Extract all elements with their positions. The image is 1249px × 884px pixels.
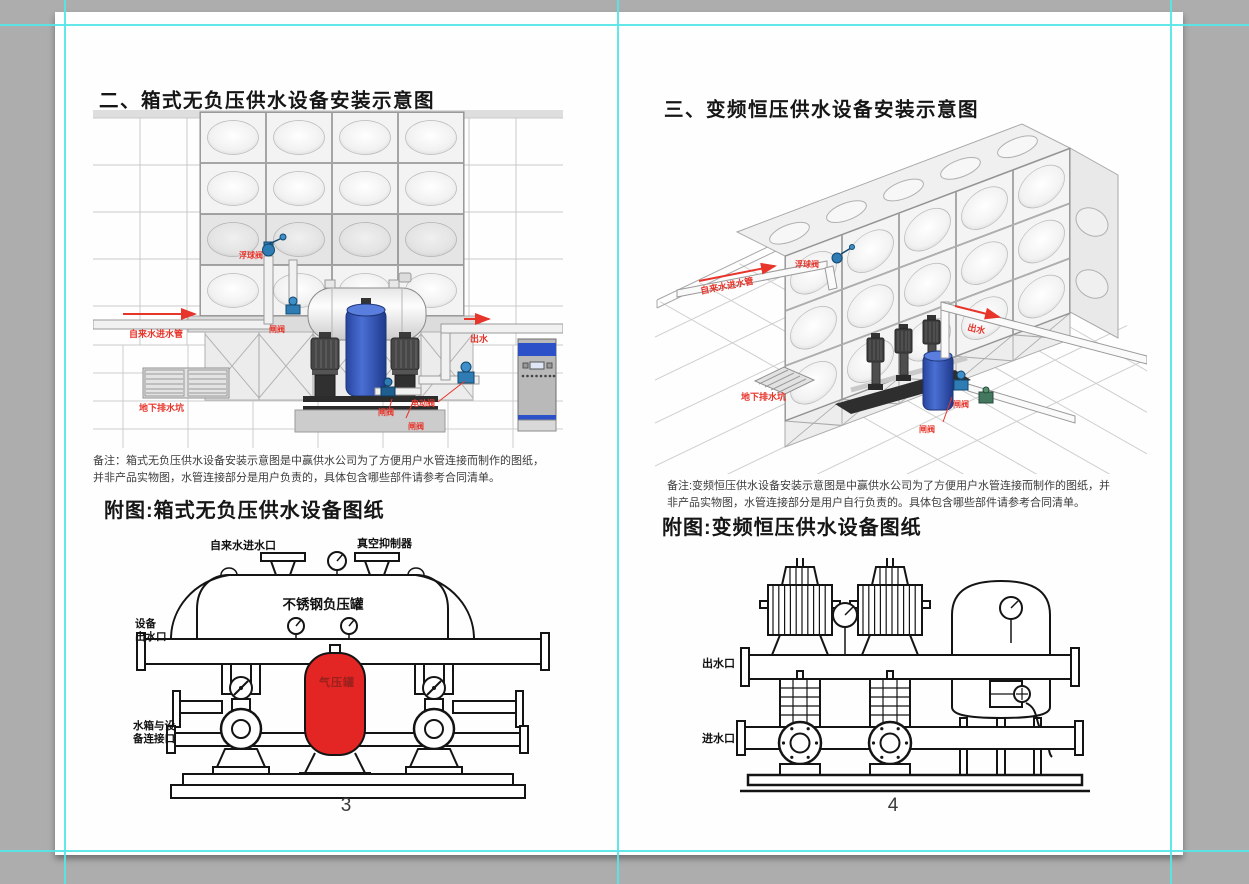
tank-end-face xyxy=(1070,148,1118,338)
workspace-canvas: 二、箱式无负压供水设备安装示意图 xyxy=(0,0,1249,884)
gate-valve-label: 闸阀 xyxy=(953,399,969,409)
base-frame xyxy=(740,775,1090,791)
motor-1 xyxy=(760,558,840,655)
outlet-port-label: 出水口 xyxy=(702,656,735,670)
page-4: 三、变频恒压供水设备安装示意图 xyxy=(0,0,1249,884)
note-line-1: 备注:变频恒压供水设备安装示意图是中赢供水公司为了方便用户水管连接而制作的图纸，… xyxy=(667,478,1110,495)
note-line-2: 非产品实物图，水管连接部分是用户自行负责的。具体包含哪些部件请参考合同清单。 xyxy=(667,495,1110,512)
vfd-diagram-svg: 自来水进水管 浮球阀 出水 地下排水坑 闸阀 闸阀 xyxy=(655,122,1147,474)
motor-2 xyxy=(850,558,930,655)
guide-horizontal-bottom[interactable] xyxy=(0,850,1249,852)
installation-diagram-vfd: 自来水进水管 浮球阀 出水 地下排水坑 闸阀 闸阀 xyxy=(655,122,1147,474)
gate-valve2-label: 闸阀 xyxy=(919,424,935,434)
pump-stack-2 xyxy=(870,671,910,727)
pump-volute-1 xyxy=(779,722,821,775)
drain-pit-label: 地下排水坑 xyxy=(741,391,786,402)
pump-volute-2 xyxy=(869,722,911,775)
guide-vertical-right[interactable] xyxy=(1170,0,1172,884)
vfd-device-drawing-svg: 出水口 进水口 xyxy=(700,555,1120,798)
page-title: 三、变频恒压供水设备安装示意图 xyxy=(664,93,979,122)
pump-stack-1 xyxy=(780,671,820,727)
diaphragm-tank xyxy=(923,351,953,410)
guide-vertical-left[interactable] xyxy=(64,0,66,884)
float-valve-label: 浮球阀 xyxy=(795,259,819,269)
note-text: 备注:变频恒压供水设备安装示意图是中赢供水公司为了方便用户水管连接而制作的图纸，… xyxy=(667,478,1110,511)
inlet-port-label: 进水口 xyxy=(702,731,735,745)
guide-horizontal-top[interactable] xyxy=(0,24,1249,26)
attached-figure-title: 附图:变频恒压供水设备图纸 xyxy=(662,511,922,540)
guide-vertical-center[interactable] xyxy=(617,0,619,884)
pressure-gauge-icon xyxy=(833,603,857,655)
page-number: 4 xyxy=(878,795,908,817)
vfd-device-drawing: 出水口 进水口 xyxy=(700,555,1120,798)
